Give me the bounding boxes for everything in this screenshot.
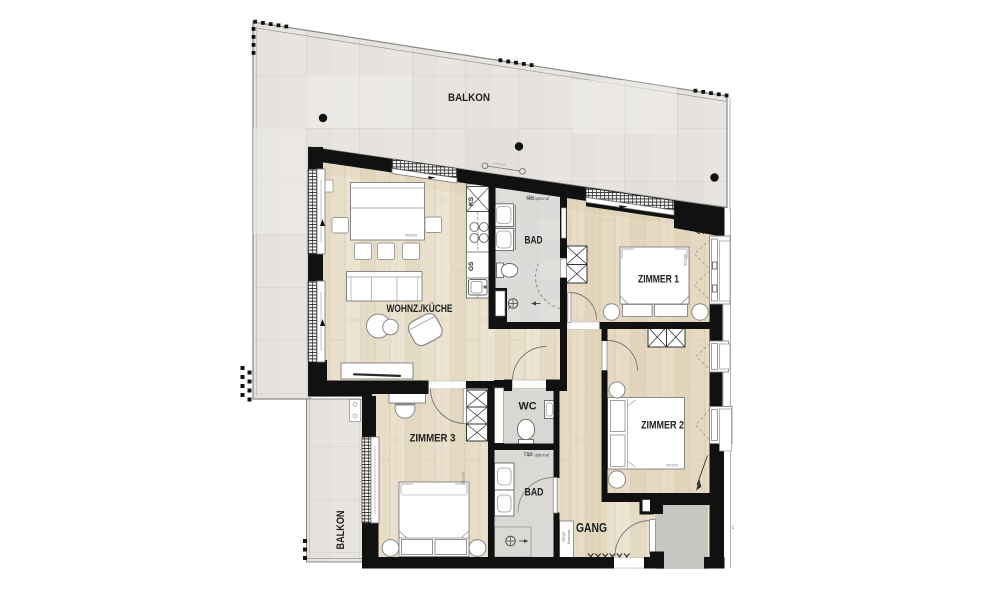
svg-text:90/200: 90/200 (462, 472, 466, 484)
svg-text:90/200: 90/200 (684, 254, 688, 266)
svg-text:BALKON: BALKON (448, 92, 490, 104)
svg-text:ZIMMER 1: ZIMMER 1 (638, 274, 679, 286)
svg-text:WC: WC (519, 401, 537, 413)
svg-text:KS: KS (468, 196, 475, 206)
svg-text:ZIMMER 3: ZIMMER 3 (410, 433, 456, 445)
svg-text:BAD: BAD (525, 487, 544, 499)
svg-text:WOHNZ./KÜCHE: WOHNZ./KÜCHE (387, 302, 453, 315)
svg-text:ZIMMER 2: ZIMMER 2 (641, 420, 684, 432)
svg-text:BALKON: BALKON (335, 510, 347, 549)
svg-text:90/200: 90/200 (666, 464, 678, 468)
svg-text:BAD: BAD (525, 235, 543, 247)
svg-text:c: c (732, 525, 735, 531)
svg-text:WT optional: WT optional (527, 453, 549, 458)
svg-text:Kommode: Kommode (567, 530, 571, 545)
svg-text:Spiegel: Spiegel (562, 531, 566, 542)
svg-text:GANG: GANG (576, 521, 607, 535)
svg-text:90/200: 90/200 (405, 233, 418, 238)
svg-text:WT optional: WT optional (527, 196, 549, 201)
svg-text:GS: GS (468, 261, 475, 271)
